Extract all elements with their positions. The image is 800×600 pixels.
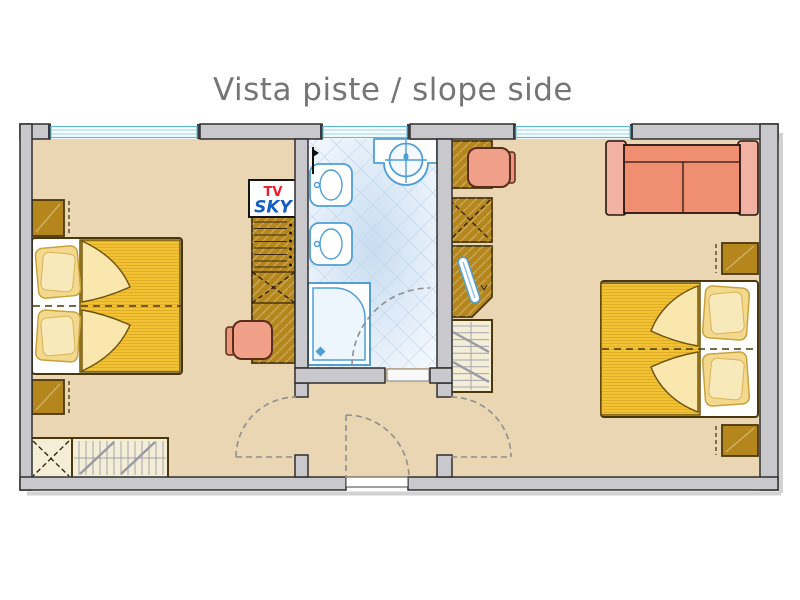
double-bed-left <box>32 238 182 374</box>
nightstand-right-bottom <box>716 425 758 456</box>
left-outer-wall <box>20 124 32 490</box>
window-left-room <box>51 127 197 138</box>
tv-sky-cabinet: TV SKY <box>249 180 297 218</box>
bottom-wall-right <box>408 477 778 490</box>
window-right-room <box>516 127 630 138</box>
bathroom-threshold <box>387 369 429 381</box>
floor-plan-image: Vista piste / slope side <box>0 0 800 600</box>
entrance-threshold <box>346 477 408 487</box>
windows <box>51 127 630 138</box>
bathroom-bottom-wall <box>295 368 385 383</box>
radiator-right <box>450 320 492 392</box>
sky-label: SKY <box>254 198 293 218</box>
chair-left <box>226 321 272 359</box>
bidet <box>310 164 352 206</box>
double-bed-right <box>601 281 758 417</box>
right-outer-wall <box>760 124 778 490</box>
bathroom-right-wall <box>437 139 452 368</box>
sofa <box>606 141 758 215</box>
nightstand-left-top <box>32 200 69 236</box>
storage-cabinet-left <box>30 438 72 479</box>
shower <box>308 283 370 365</box>
chair-right <box>468 148 515 187</box>
page-title: Vista piste / slope side <box>213 72 573 108</box>
hallway-floor <box>295 368 452 477</box>
floor-plan-page: Vista piste / slope side <box>0 0 800 600</box>
radiator-left <box>72 438 168 478</box>
bottom-wall-left <box>20 477 346 490</box>
toilet <box>310 223 352 265</box>
wardrobe-right <box>448 198 492 242</box>
nightstand-left-bottom <box>32 380 69 414</box>
bathroom-left-wall <box>295 139 308 368</box>
nightstand-right-top <box>716 243 758 274</box>
window-bathroom <box>323 127 407 138</box>
